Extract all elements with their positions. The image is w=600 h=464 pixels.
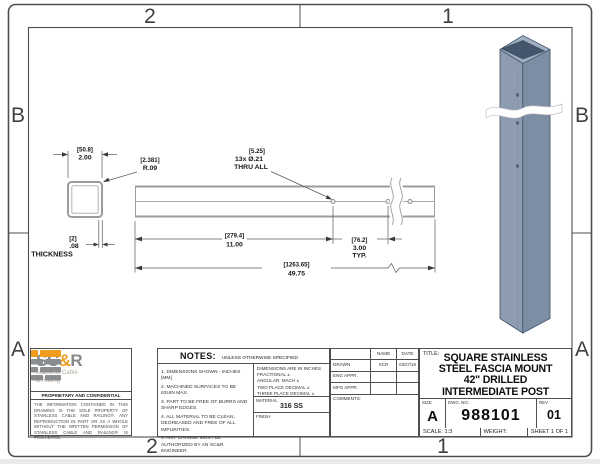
arrowhead [103, 178, 110, 182]
scale-row: SCALE: 1:3 WEIGHT: SHEET 1 OF 1 [420, 428, 571, 437]
tolerance-lines: DIMENSIONS ARE IN INCHES FRACTIONAL ± AN… [254, 364, 329, 397]
scale-label: SCALE: 1:3 [420, 428, 480, 437]
zone-label-top-1: 1 [442, 5, 454, 28]
note-item: 3. PART TO BE FREE OF BURRS AND SHARP ED… [161, 400, 251, 413]
date-header: DATE [397, 349, 418, 360]
finish-label: FINISH [256, 414, 270, 419]
post-hole [516, 93, 519, 97]
section-view: [50.8] 2.00 [2.381] R.09 [2] .08 THICKNE… [31, 147, 159, 259]
dim-thickness-lines [86, 220, 115, 248]
size-value: A [420, 408, 445, 425]
dim-hole-callout: 13x Ø.21 [235, 156, 263, 163]
tube-outer-wall [68, 182, 102, 217]
notes-header: NOTES: UNLESS OTHERWISE SPECIFIED [158, 349, 329, 364]
approvals-corner-cell [331, 349, 371, 360]
note-item: 4. ALL MATERIAL TO BE CLEAN, DEGREASED A… [161, 415, 251, 434]
eng-appr-name [371, 372, 397, 384]
title-line: 42" DRILLED [420, 375, 571, 386]
post-right-face [523, 50, 550, 334]
dim-break-zigzag [388, 264, 400, 273]
dwg-number: 988101 [446, 407, 536, 425]
scr-rail-icon [31, 349, 61, 383]
tolerance-line: THREE PLACE DECIMAL ± [257, 391, 326, 397]
dim-radius-mm: [2.381] [140, 157, 159, 164]
finish-cell: FINISH [254, 413, 329, 436]
title-block: TITLE: SQUARE STAINLESS STEEL FASCIA MOU… [419, 348, 572, 437]
side-view: [5.25] 13x Ø.21 THRU ALL [279.4] 11.00 [… [135, 148, 435, 278]
drilled-hole [386, 199, 390, 203]
dim-spacing-in: 3.00 [353, 245, 366, 252]
drawn-name: SCR [371, 360, 397, 372]
dim-spacing-mm: [76.2] [352, 237, 368, 244]
drawn-date: 03/27/18 [397, 360, 418, 372]
zone-label-left-a: A [11, 338, 25, 361]
zone-label-bottom-2: 2 [146, 435, 158, 458]
title-label: TITLE: [423, 351, 439, 357]
notes-subtitle: UNLESS OTHERWISE SPECIFIED [222, 356, 298, 361]
drawing-title: SQUARE STAINLESS STEEL FASCIA MOUNT 42" … [420, 349, 571, 398]
comments-cell: COMMENTS: [331, 395, 418, 437]
dim-radius-in: R.09 [143, 165, 158, 172]
tolerance-block: DIMENSIONS ARE IN INCHES FRACTIONAL ± AN… [253, 364, 329, 436]
eng-appr-label: ENG APPR. [331, 372, 371, 384]
material-cell: MATERIAL 316 SS [254, 397, 329, 413]
proprietary-text: THE INFORMATION CONTAINED IN THIS DRAWIN… [31, 400, 131, 443]
drawing-sheet: 2 1 2 1 B A B A [50.8] 2.00 [2.381] R.09 [0, 0, 600, 464]
thickness-label: THICKNESS [31, 250, 73, 259]
drilled-hole [331, 199, 335, 203]
isometric-post [486, 36, 562, 334]
rev-value: 01 [537, 408, 571, 422]
dim-spacing-typ: TYP. [352, 253, 366, 260]
note-item: 5. ANY CHANGE MUST BE AUTHORIZED BY AN S… [161, 436, 251, 455]
proprietary-title: PROPRIETARY AND CONFIDENTIAL [31, 391, 131, 400]
notes-body: 1. DIMENSIONS SHOWN - INCHES [MM] 2. MAC… [158, 364, 329, 436]
zone-label-right-b: B [575, 104, 589, 127]
notes-box: NOTES: UNLESS OTHERWISE SPECIFIED 1. DIM… [157, 348, 330, 437]
post-hole [516, 164, 519, 168]
mfg-appr-label: MFG APPR. [331, 383, 371, 395]
weight-label: WEIGHT: [480, 428, 527, 437]
arrowhead [326, 237, 333, 242]
arrowhead [135, 237, 142, 242]
hole-leader [271, 172, 331, 199]
post-hole [516, 121, 519, 125]
post-left-face [500, 50, 523, 334]
arrowhead [102, 152, 108, 156]
notes-list: 1. DIMENSIONS SHOWN - INCHES [MM] 2. MAC… [158, 364, 253, 436]
rev-cell: REV 01 [537, 399, 571, 428]
rev-label: REV [539, 400, 548, 405]
dim-overall-in: 49.75 [288, 271, 305, 278]
eng-appr-date [397, 372, 418, 384]
dim-first-hole-in: 11.00 [226, 242, 243, 249]
dim-hole-mm: [5.25] [249, 148, 265, 155]
arrowhead [62, 152, 68, 156]
size-row: SIZE A DWG. NO. 988101 REV 01 [420, 399, 571, 428]
arrowhead [428, 266, 435, 271]
page-margin [0, 459, 600, 464]
dim-width-in: 2.00 [78, 155, 91, 162]
arrowhead [388, 237, 395, 242]
name-header: NAME [371, 349, 397, 360]
dwg-label: DWG. NO. [448, 400, 469, 405]
size-cell: SIZE A [420, 399, 446, 428]
dim-hole-thru: THRU ALL [234, 164, 268, 171]
material-value: 316 SS [254, 403, 329, 410]
size-label: SIZE [422, 400, 432, 405]
mfg-appr-date [397, 383, 418, 395]
zone-label-bottom-1: 1 [437, 435, 449, 458]
dim-width-mm: [50.8] [77, 147, 93, 154]
sheet-label: SHEET 1 OF 1 [527, 428, 571, 437]
notes-title: NOTES: [180, 351, 216, 361]
zone-label-top-2: 2 [144, 5, 156, 28]
arrowhead [326, 195, 332, 199]
dwg-cell: DWG. NO. 988101 [446, 399, 537, 428]
dim-first-hole-mm: [279.4] [225, 233, 244, 240]
mfg-appr-name [371, 383, 397, 395]
logo-box: SC&R Stainless Cable & Railing PROPRIETA… [30, 348, 132, 436]
arrowhead [102, 243, 107, 247]
drilled-hole [408, 199, 412, 203]
drawn-label: DRAWN [331, 360, 371, 372]
arrowhead [94, 243, 99, 247]
title-line: INTERMEDIATE POST [420, 387, 571, 398]
radius-leader [105, 172, 138, 182]
dim-overall-mm: [1263.65] [283, 262, 309, 269]
note-item: 2. MACHINED SURFACES TO BE 63UIN MAX. [161, 385, 251, 398]
zone-label-right-a: A [575, 338, 589, 361]
arrowhead [135, 266, 142, 271]
title-area: TITLE: SQUARE STAINLESS STEEL FASCIA MOU… [420, 349, 571, 399]
dim-thickness-mm: [2] [69, 236, 76, 243]
note-item: 1. DIMENSIONS SHOWN - INCHES [MM] [161, 370, 251, 383]
logo-r: R [70, 351, 82, 370]
approvals-table: NAME DATE DRAWN SCR 03/27/18 ENG APPR. M… [330, 348, 419, 437]
logo: SC&R Stainless Cable & Railing [31, 349, 131, 391]
zone-label-left-b: B [11, 104, 25, 127]
scr-rail-icon-bars [31, 350, 61, 381]
